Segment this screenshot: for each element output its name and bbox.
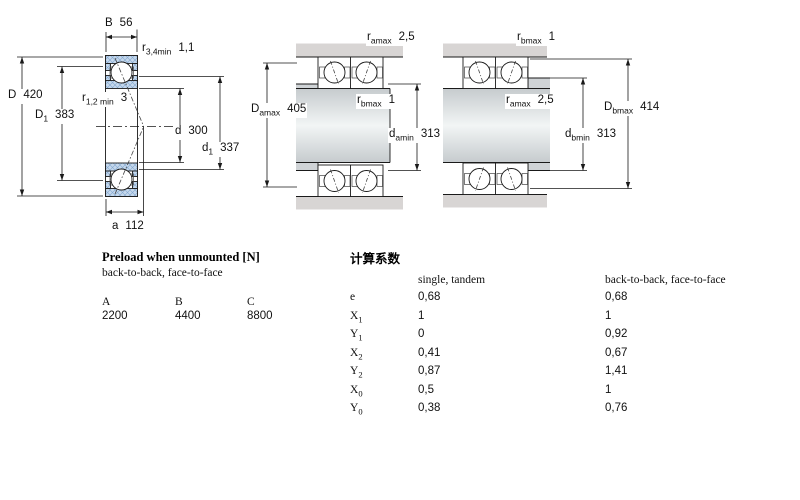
- factors-label-column-header: [350, 274, 418, 290]
- preload-value: 2200: [102, 310, 175, 322]
- factors-table: 计算系数 single, tandem back-to-back, face-t…: [350, 248, 790, 420]
- dim-label-rbmax-b: rbmax1: [516, 31, 556, 46]
- dim-subscript: 1,2 min: [86, 96, 114, 106]
- dim-subscript: amax: [371, 35, 392, 45]
- dim-subscript: bmax: [361, 98, 382, 108]
- dim-subscript: bmin: [571, 132, 589, 142]
- dim-label-rbmax-a: rbmax1: [356, 94, 396, 109]
- dim-label-dbmin: dbmin313: [564, 128, 617, 143]
- dim-value: 2,5: [538, 94, 554, 106]
- factor-value-b2b: 0,67: [605, 346, 790, 365]
- factor-row-label: e: [350, 290, 418, 309]
- dim-value: 2,5: [399, 31, 415, 43]
- factor-value-b2b: 1: [605, 309, 790, 328]
- dim-symbol: B: [105, 17, 113, 29]
- factors-column-back-to-back: back-to-back, face-to-face: [605, 274, 790, 290]
- dim-subscript: 1: [43, 113, 48, 123]
- factors-grid: single, tandem back-to-back, face-to-fac…: [350, 274, 790, 420]
- bearing-datasheet-page: B56 r3,4min1,1 D420 D1383 r1,2 min3 d300…: [0, 0, 800, 500]
- factor-value-b2b: 0,76: [605, 401, 790, 420]
- factor-value-single: 0,68: [418, 290, 605, 309]
- dim-label-d: d300: [174, 125, 209, 140]
- factor-row-label: X0: [350, 383, 418, 402]
- preload-table: Preload when unmounted [N] back-to-back,…: [102, 250, 342, 322]
- dim-label-a: a112: [111, 220, 145, 235]
- dim-value: 112: [125, 220, 143, 232]
- factor-value-single: 0,5: [418, 383, 605, 402]
- dim-subscript: bmax: [521, 35, 542, 45]
- factor-row-label: Y2: [350, 364, 418, 383]
- factor-value-single: 1: [418, 309, 605, 328]
- factor-value-single: 0,87: [418, 364, 605, 383]
- preload-grid: A B C 2200 4400 8800: [102, 296, 342, 322]
- dim-value: 414: [640, 101, 659, 113]
- dim-label-damin: damin313: [388, 128, 441, 143]
- dim-label-d1: d1337: [201, 142, 240, 157]
- dim-symbol: d: [175, 125, 181, 137]
- factors-title: 计算系数: [350, 248, 790, 267]
- dim-label-r34min: r3,4min1,1: [141, 42, 195, 57]
- dim-subscript: amin: [395, 132, 413, 142]
- dim-subscript: bmax: [612, 105, 633, 115]
- preload-column-header: C: [247, 296, 342, 308]
- factor-value-single: 0,41: [418, 346, 605, 365]
- factors-column-single-tandem: single, tandem: [418, 274, 605, 290]
- dim-value: 56: [120, 17, 133, 29]
- factor-value-b2b: 0,68: [605, 290, 790, 309]
- factor-row-label: X1: [350, 309, 418, 328]
- dim-value: 313: [597, 128, 616, 140]
- dim-value: 383: [55, 109, 74, 121]
- dim-label-Damax: Damax405: [250, 103, 307, 118]
- factor-value-single: 0,38: [418, 401, 605, 420]
- dimension-arrows-right: [581, 59, 630, 189]
- preload-column-header: B: [175, 296, 247, 308]
- preload-value: 4400: [175, 310, 247, 322]
- dim-value: 1: [549, 31, 555, 43]
- dim-subscript: 3,4min: [146, 46, 172, 56]
- dim-label-r12min: r1,2 min3: [81, 92, 128, 107]
- preload-subtitle: back-to-back, face-to-face: [102, 267, 342, 279]
- dim-label-ramax-b: ramax2,5: [505, 94, 555, 109]
- duplex-arrangement-b-diagram: [443, 44, 632, 208]
- factor-row-label: X2: [350, 346, 418, 365]
- dim-label-ramax-a: ramax2,5: [366, 31, 416, 46]
- preload-column-header: A: [102, 296, 175, 308]
- dim-value: 1,1: [178, 42, 194, 54]
- dim-value: 337: [220, 142, 239, 154]
- dim-subscript: 1: [208, 146, 213, 156]
- dim-symbol: D: [8, 89, 16, 101]
- dim-value: 1: [389, 94, 395, 106]
- factor-value-b2b: 1,41: [605, 364, 790, 383]
- factor-value-b2b: 1: [605, 383, 790, 402]
- dim-value: 420: [23, 89, 42, 101]
- dim-label-Dbmax: Dbmax414: [603, 101, 660, 116]
- factor-row-label: Y1: [350, 327, 418, 346]
- dim-value: 313: [421, 128, 440, 140]
- dim-value: 3: [121, 92, 127, 104]
- dim-label-D1: D1383: [34, 109, 75, 124]
- preload-value: 8800: [247, 310, 342, 322]
- dim-label-B: B56: [104, 17, 133, 32]
- dim-subscript: amax: [510, 98, 531, 108]
- dim-label-D: D420: [7, 89, 44, 104]
- factor-row-label: Y0: [350, 401, 418, 420]
- dim-symbol: a: [112, 220, 118, 232]
- dim-subscript: amax: [259, 107, 280, 117]
- duplex-arrangement-a-diagram: [263, 44, 421, 210]
- factor-value-single: 0: [418, 327, 605, 346]
- dim-value: 300: [188, 125, 207, 137]
- dim-value: 405: [287, 103, 306, 115]
- factor-value-b2b: 0,92: [605, 327, 790, 346]
- preload-title: Preload when unmounted [N]: [102, 250, 342, 265]
